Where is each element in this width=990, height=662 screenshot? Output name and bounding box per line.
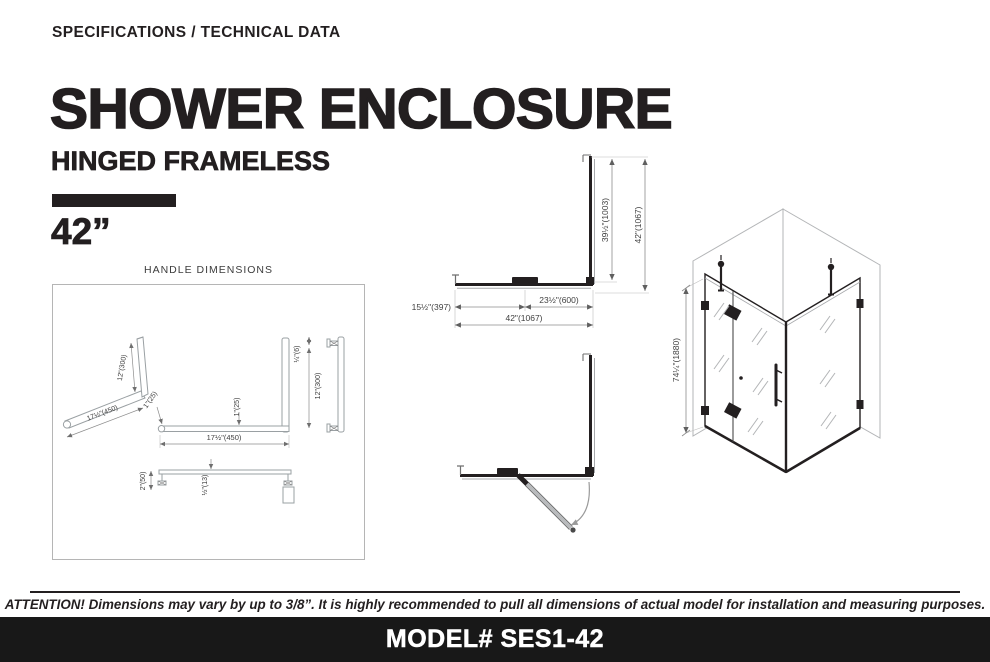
dim-outer-depth: 42"(1067) bbox=[633, 206, 643, 243]
handle-front-view bbox=[157, 338, 289, 448]
page-subtitle: HINGED FRAMELESS bbox=[51, 146, 330, 177]
dim-total-width: 42"(1067) bbox=[505, 313, 542, 323]
handle-dimensions-box: 17½"(450) 12"(300) 1"(25) 1"(25) 17½"(45… bbox=[52, 284, 365, 560]
model-number: MODEL# SES1-42 bbox=[386, 625, 604, 654]
wall-clamp-left-bottom bbox=[701, 406, 709, 415]
accent-bar bbox=[52, 194, 176, 207]
dim-inner-depth: 39½"(1003) bbox=[600, 198, 610, 242]
footer-divider bbox=[30, 591, 960, 593]
dim-top-standoff: 2"(50) bbox=[140, 472, 147, 491]
size-label: 42” bbox=[51, 211, 111, 253]
return-glass-panel bbox=[786, 278, 864, 472]
spec-sheet-page: SPECIFICATIONS / TECHNICAL DATA SHOWER E… bbox=[0, 0, 990, 662]
front-glass-panel bbox=[701, 274, 786, 472]
plan-hinge-block bbox=[497, 468, 518, 475]
page-title: SHOWER ENCLOSURE bbox=[50, 82, 672, 136]
eyebrow-heading: SPECIFICATIONS / TECHNICAL DATA bbox=[52, 24, 341, 42]
support-rod-right bbox=[828, 258, 834, 295]
door-knob bbox=[739, 376, 743, 380]
handle-top-view bbox=[151, 459, 294, 503]
plan-top-view: 39½"(1003) 42"(1067) 15½"(397) 23½"(600)… bbox=[412, 155, 649, 328]
dim-iso-height: 12"(300) bbox=[117, 354, 129, 381]
plan-corner-post-open bbox=[585, 467, 594, 476]
dim-panel-width: 23½"(600) bbox=[539, 295, 579, 305]
isometric-view: 74¼"(1880) bbox=[668, 193, 968, 493]
plan-handle-block bbox=[512, 277, 538, 284]
dim-iso-height-label: 74¼"(1880) bbox=[671, 338, 681, 382]
plan-corner-post bbox=[586, 277, 594, 285]
height-dimension: 74¼"(1880) bbox=[671, 279, 703, 436]
footer-bar: MODEL# SES1-42 bbox=[0, 617, 990, 662]
dim-door-width: 15½"(397) bbox=[412, 302, 452, 312]
attention-note: ATTENTION! Dimensions may vary by up to … bbox=[0, 597, 990, 612]
door-swing-arrow bbox=[571, 482, 589, 525]
open-door-glass bbox=[527, 484, 571, 528]
dim-side-height: 12"(300) bbox=[315, 373, 322, 400]
wall-clamp-right-top bbox=[857, 299, 864, 308]
wall-clamp-right-bottom bbox=[857, 400, 864, 409]
wall-clamp-left-top bbox=[701, 301, 709, 310]
dim-top-thickness: ½"(13) bbox=[201, 475, 209, 496]
open-door-knob bbox=[570, 527, 575, 532]
handle-iso-view bbox=[63, 337, 148, 437]
handle-drawings: 17½"(450) 12"(300) 1"(25) 1"(25) 17½"(45… bbox=[53, 285, 364, 559]
dim-side-gap: ¼"(6) bbox=[294, 346, 301, 363]
plan-open-door-view bbox=[457, 354, 595, 533]
dim-front-length: 17½"(450) bbox=[207, 433, 242, 442]
handle-dimensions-title: HANDLE DIMENSIONS bbox=[52, 264, 365, 276]
plan-views: 39½"(1003) 42"(1067) 15½"(397) 23½"(600)… bbox=[405, 145, 675, 565]
dim-front-thickness-b: 1"(25) bbox=[234, 398, 241, 417]
